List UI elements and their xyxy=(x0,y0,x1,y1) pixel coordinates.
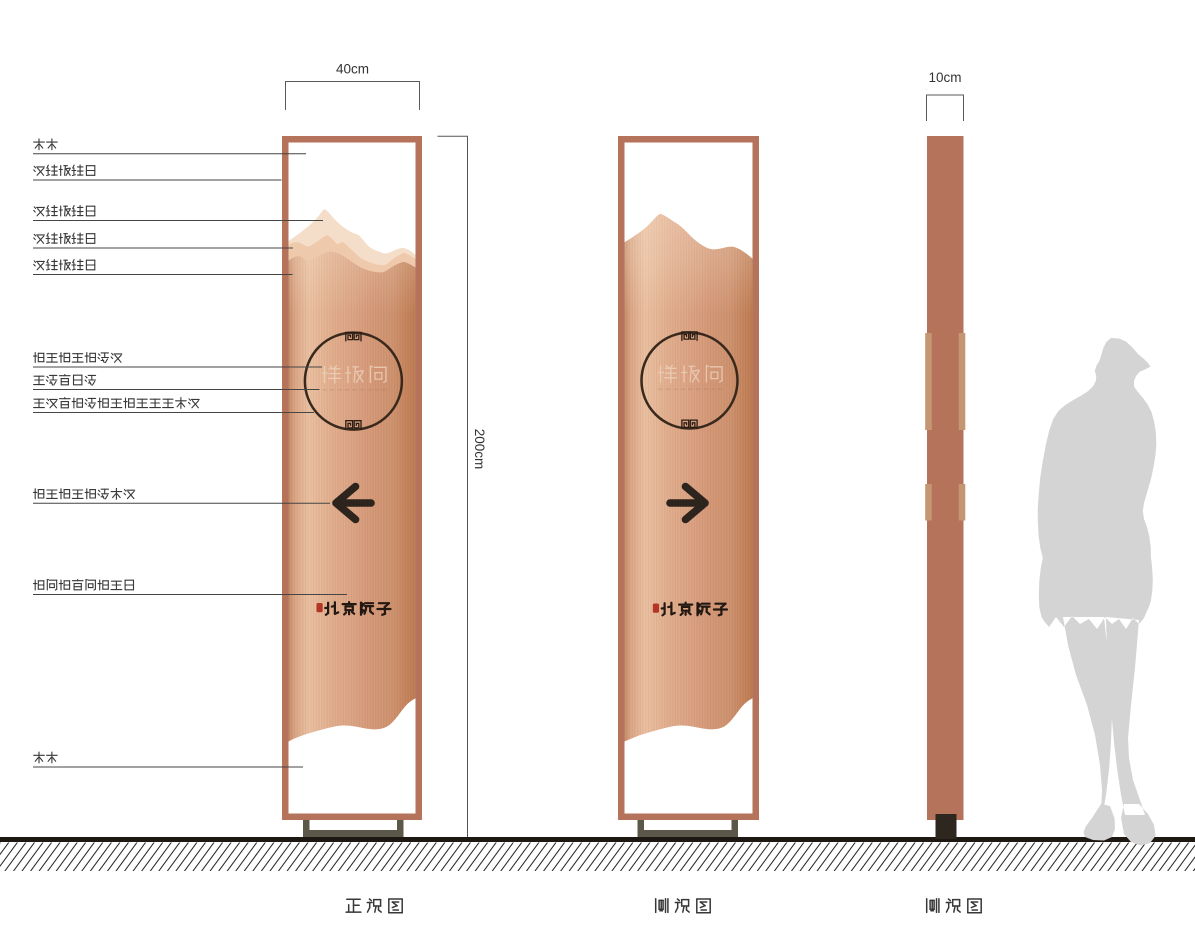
svg-text:200cm: 200cm xyxy=(472,429,487,470)
svg-text:40cm: 40cm xyxy=(336,62,369,77)
svg-text:10cm: 10cm xyxy=(928,70,961,85)
